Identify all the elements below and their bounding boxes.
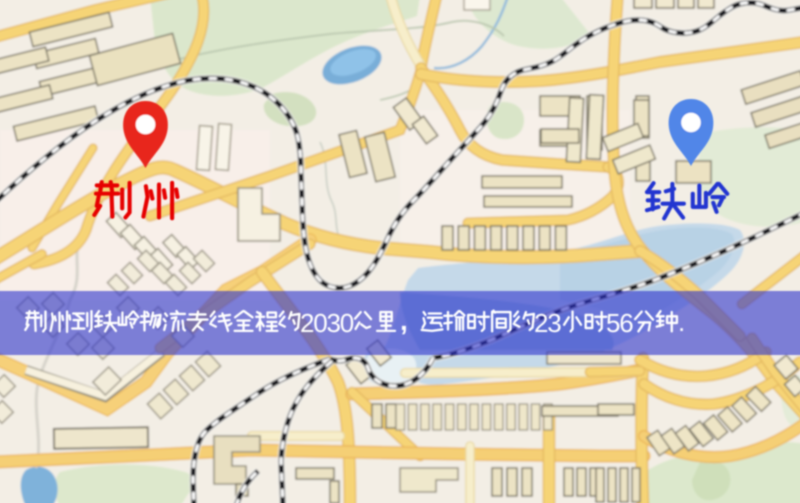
svg-text:56: 56	[606, 308, 633, 338]
svg-text:2030: 2030	[300, 308, 354, 338]
svg-text:23: 23	[534, 308, 561, 338]
svg-text:.: .	[678, 307, 685, 337]
svg-text:,: ,	[400, 305, 408, 336]
